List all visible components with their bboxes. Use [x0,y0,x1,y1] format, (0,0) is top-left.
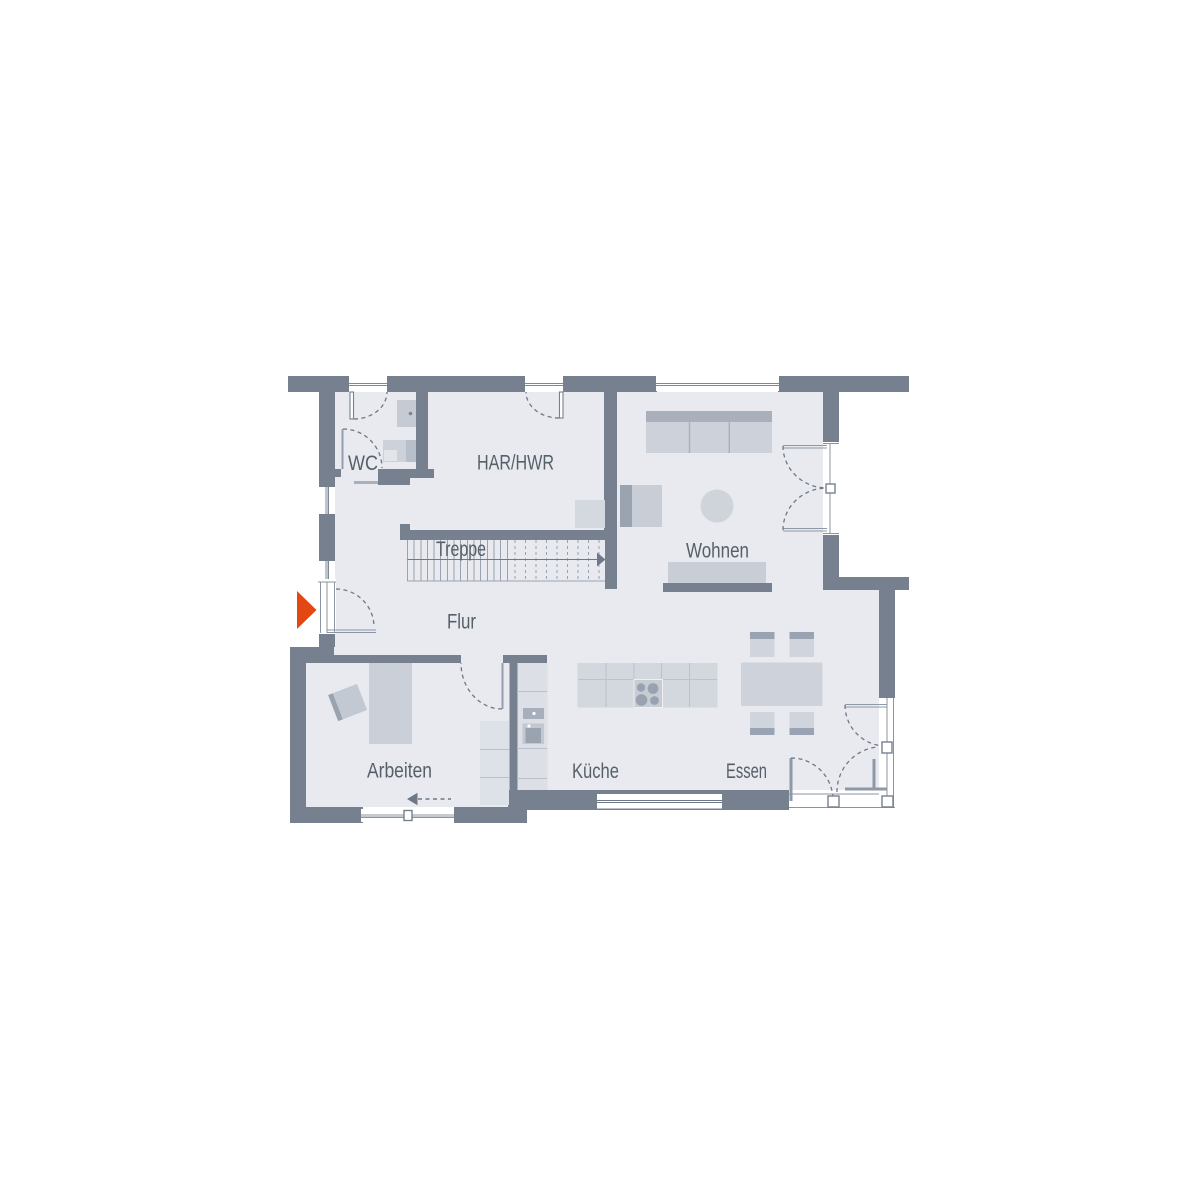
svg-text:Wohnen: Wohnen [686,540,749,563]
svg-text:Flur: Flur [447,611,476,634]
svg-text:Essen: Essen [726,760,767,783]
svg-text:WC: WC [348,452,378,475]
svg-text:HAR/HWR: HAR/HWR [477,452,554,475]
svg-text:Arbeiten: Arbeiten [367,760,432,783]
svg-text:Küche: Küche [572,760,619,783]
svg-text:Treppe: Treppe [436,538,486,561]
